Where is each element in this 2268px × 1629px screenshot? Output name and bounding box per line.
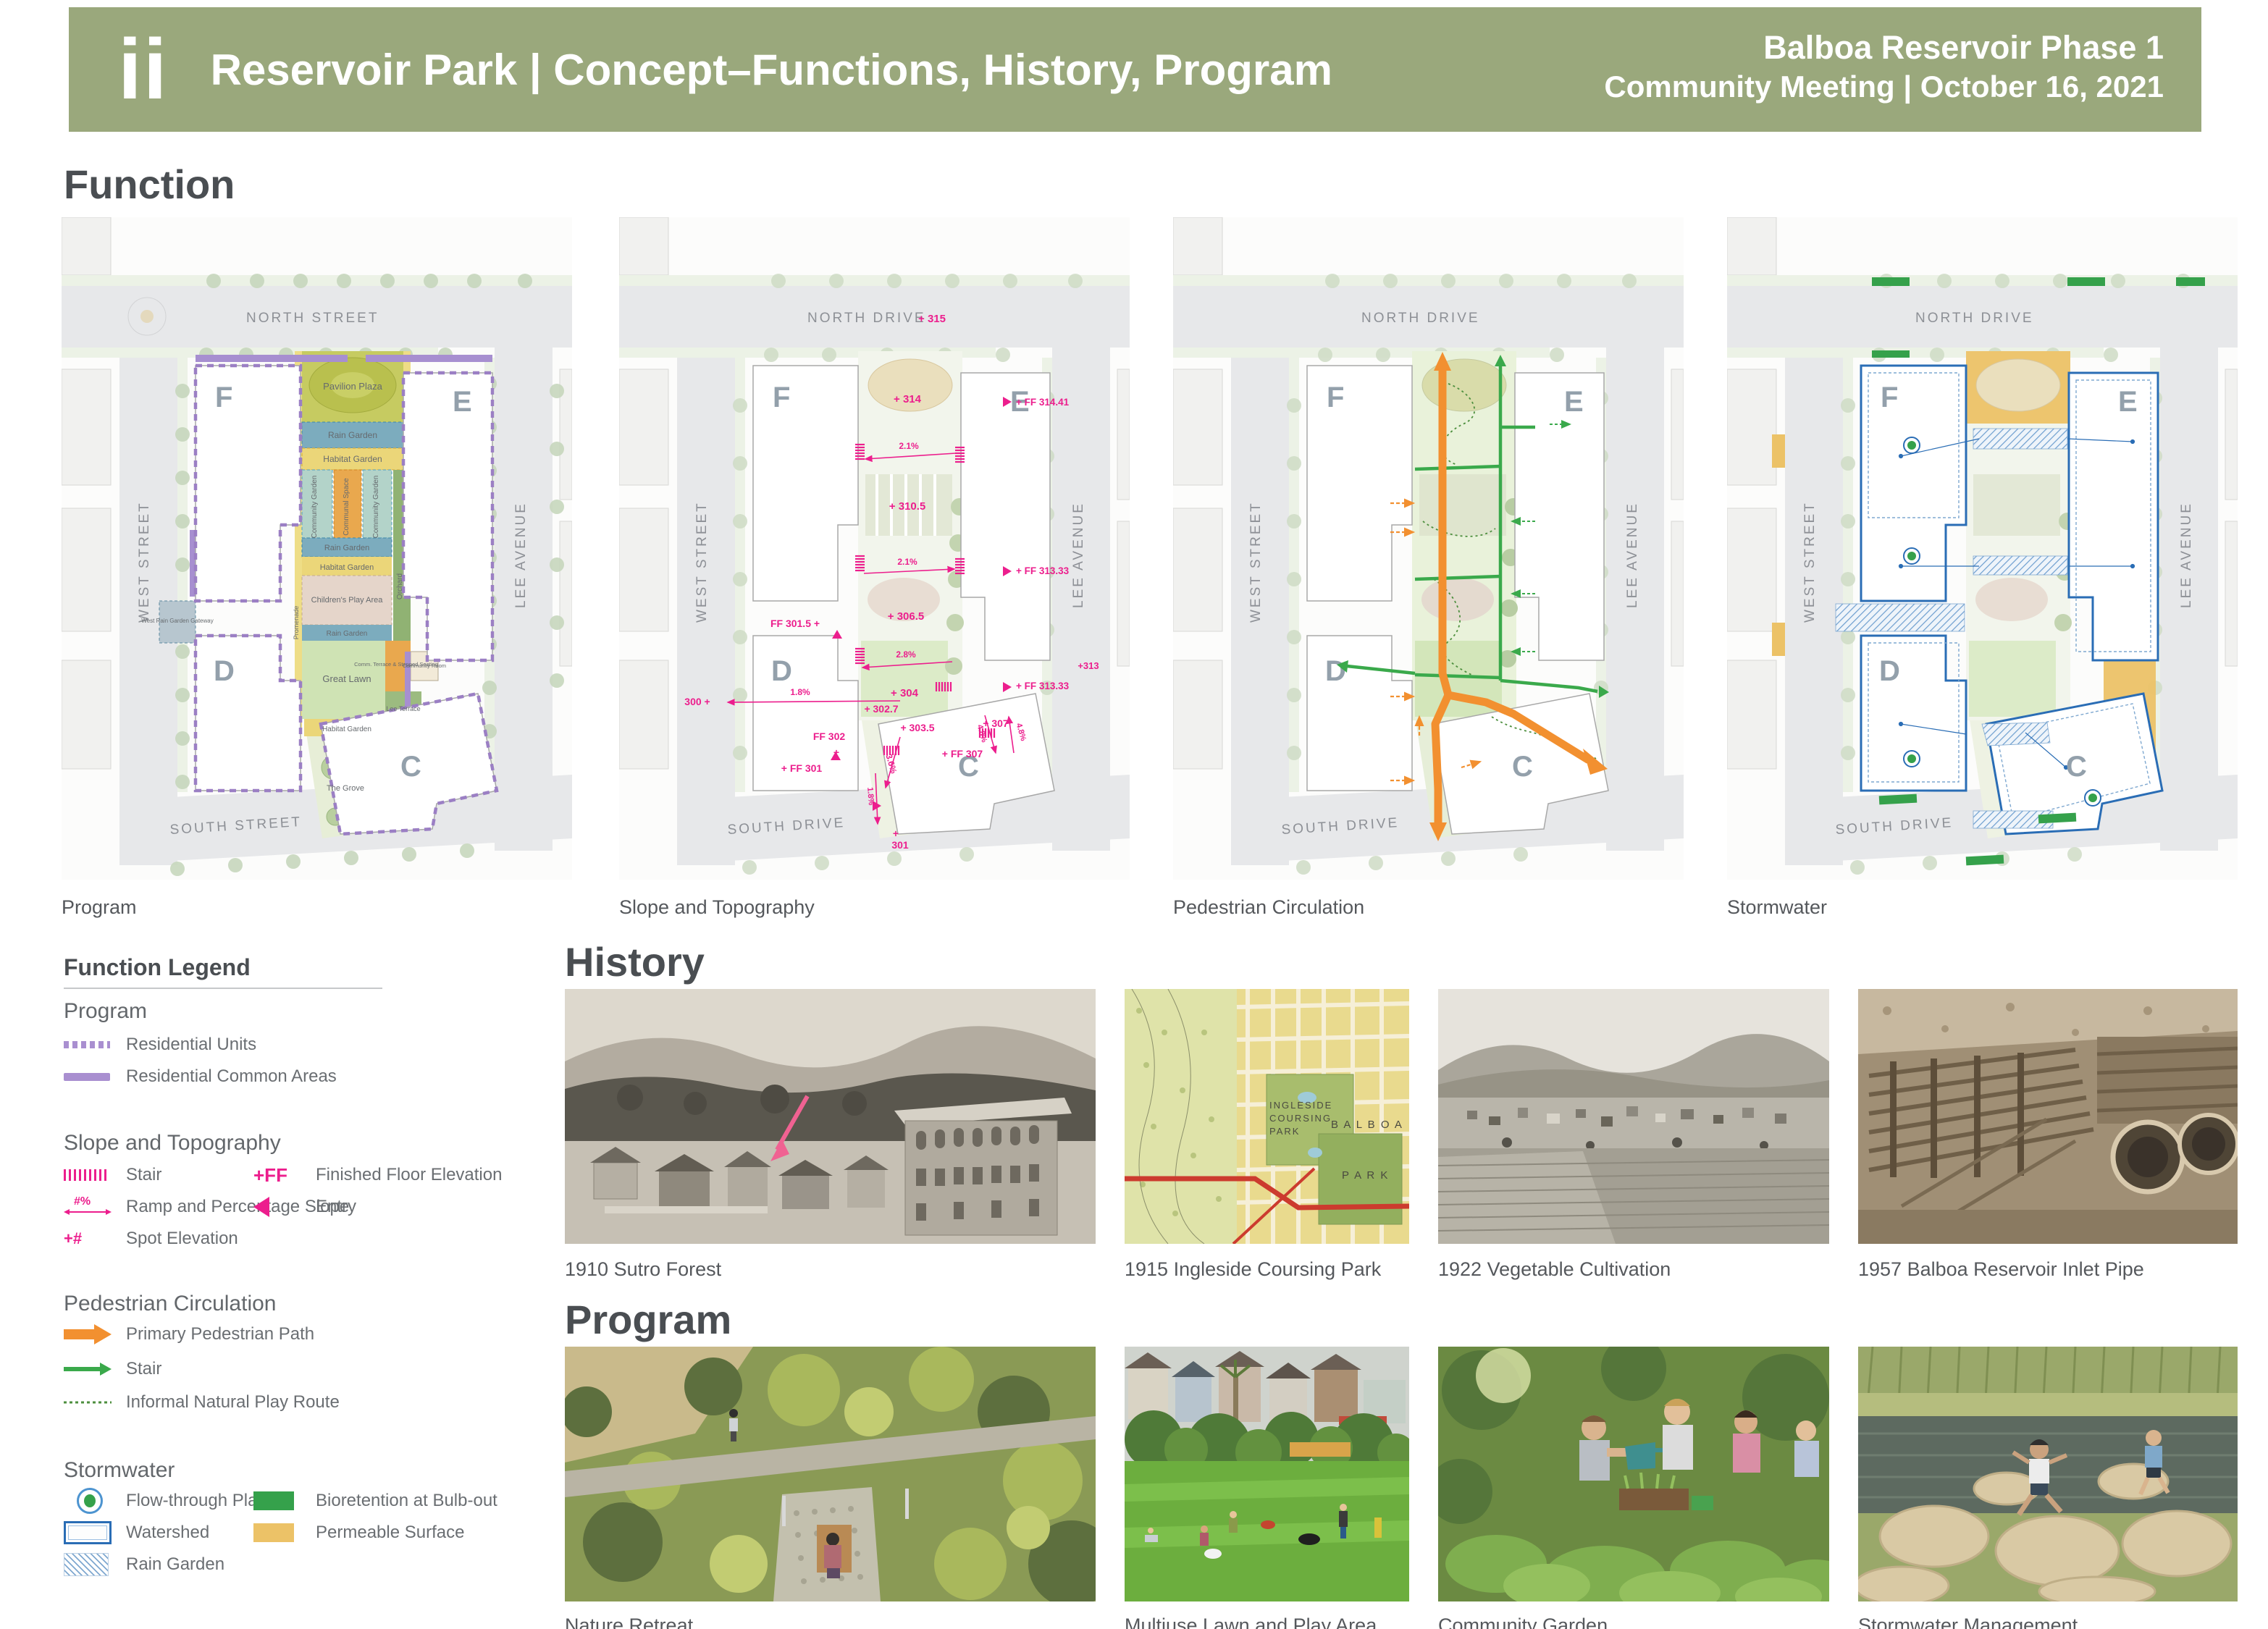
legend-label: Informal Natural Play Route xyxy=(126,1392,340,1413)
legend-item-entry: Entry xyxy=(253,1195,356,1219)
map-text: P A R K xyxy=(1342,1169,1389,1182)
block-e-label: E xyxy=(2118,386,2138,418)
west-street-label: WEST STREET xyxy=(1802,501,1818,623)
reservoir-inlet-pipe-photo xyxy=(1858,989,2238,1244)
spot-elevation: 300 + xyxy=(684,696,710,707)
west-street-label: WEST STREET xyxy=(694,501,710,623)
lee-avenue-label: LEE AVENUE xyxy=(2179,502,2194,608)
legend-label: Entry xyxy=(316,1197,356,1217)
legend-group-slope: Slope and Topography xyxy=(64,1131,281,1156)
program-photo-multiuse-lawn xyxy=(1125,1347,1409,1601)
legend-label: Rain Garden xyxy=(126,1554,224,1575)
zone-label: Children's Play Area xyxy=(311,596,384,605)
legend-item-informal: Informal Natural Play Route xyxy=(64,1390,340,1415)
zone-label: West Rain Garden Gateway xyxy=(141,618,213,624)
zone-label: Promenade xyxy=(293,606,300,640)
history-heading: History xyxy=(565,938,705,985)
legend-item-ff: +FF Finished Floor Elevation xyxy=(253,1163,502,1187)
west-street-label: WEST STREET xyxy=(137,501,152,623)
block-d-label: D xyxy=(771,655,792,687)
program-photo-nature-retreat xyxy=(565,1347,1096,1601)
legend-label: Bioretention at Bulb-out xyxy=(316,1491,497,1511)
map-text: B A L B O A xyxy=(1331,1119,1403,1131)
zone-label: Rain Garden xyxy=(324,544,369,552)
map-text: INGLESIDE xyxy=(1269,1100,1332,1111)
stormwater-management-photo xyxy=(1858,1347,2238,1601)
history-caption-1922: 1922 Vegetable Cultivation xyxy=(1438,1258,1671,1281)
ff-elevation: + FF 313.33 xyxy=(1016,681,1070,691)
sutro-forest-photo xyxy=(565,989,1096,1244)
west-street-label: WEST STREET xyxy=(1248,501,1264,623)
slope-pct: 1.8% xyxy=(790,687,810,697)
zone-label: Rain Garden xyxy=(327,630,368,638)
legend-group-program: Program xyxy=(64,999,147,1024)
legend-item-spot: +# Spot Elevation xyxy=(64,1226,238,1251)
map-text: COURSING xyxy=(1269,1113,1332,1124)
svg-text:#%: #% xyxy=(74,1195,91,1208)
history-caption-1957: 1957 Balboa Reservoir Inlet Pipe xyxy=(1858,1258,2144,1281)
map-slope-topography: F E D C NORTH DRIVE WEST STREET LEE AVEN… xyxy=(619,217,1130,880)
zone-label: Community Garden xyxy=(311,476,319,539)
block-f-label: F xyxy=(1881,382,1898,413)
map-stormwater: F E D C NORTH DRIVE WEST STREET LEE AVEN… xyxy=(1727,217,2238,880)
function-heading: Function xyxy=(64,161,235,208)
history-caption-1910: 1910 Sutro Forest xyxy=(565,1258,721,1281)
plus-mark: + xyxy=(833,746,839,758)
ff-elevation: FF 301.5 + xyxy=(770,618,820,629)
zone-label: Habitat Garden xyxy=(322,725,371,733)
block-d-label: D xyxy=(1879,655,1900,687)
spot-elevation: + 315 xyxy=(918,313,946,325)
bioretention-symbol xyxy=(253,1491,306,1510)
map-caption-stormwater: Stormwater xyxy=(1727,896,1827,919)
person-on-bench xyxy=(817,1525,852,1578)
map-text: PARK xyxy=(1269,1126,1300,1137)
north-street-label: NORTH STREET xyxy=(246,311,379,326)
zone-label: Lee Terrace xyxy=(386,705,420,712)
zone-label: Great Lawn xyxy=(322,673,371,684)
spot-elevation: + 307 xyxy=(983,717,1009,729)
planter-box xyxy=(1619,1489,1689,1510)
zone-label: Orchard xyxy=(396,573,404,599)
zone-label: Rain Garden xyxy=(328,430,377,440)
legend-item-ped-stair: Stair xyxy=(64,1357,161,1381)
legend-heading: Function Legend xyxy=(64,954,251,981)
legend-item-watershed: Watershed xyxy=(64,1520,209,1545)
spot-elevation: + 314 xyxy=(894,393,922,405)
program-site-plan: F E D C NORTH STREET WEST STREET LEE AVE… xyxy=(62,217,572,880)
lee-avenue-label: LEE AVENUE xyxy=(1071,502,1086,608)
circulation-site-plan: F E D C NORTH DRIVE WEST STREET LEE AVEN… xyxy=(1173,217,1684,880)
legend-item-residential-common: Residential Common Areas xyxy=(64,1064,337,1089)
legend-label: Residential Common Areas xyxy=(126,1066,337,1087)
spot-elevation: + 302.7 xyxy=(864,703,898,715)
legend-item-bioretention: Bioretention at Bulb-out xyxy=(253,1489,497,1513)
rain-garden-symbol xyxy=(64,1553,116,1576)
multiuse-lawn-photo xyxy=(1125,1347,1409,1601)
meeting-date: Community Meeting | October 16, 2021 xyxy=(1604,68,2164,106)
program-photo-stormwater xyxy=(1858,1347,2238,1601)
history-photo-1922 xyxy=(1438,989,1829,1244)
north-drive-label: NORTH DRIVE xyxy=(1361,311,1480,326)
entry-symbol xyxy=(253,1197,306,1217)
map-pedestrian-circulation: F E D C NORTH DRIVE WEST STREET LEE AVEN… xyxy=(1173,217,1684,880)
project-name: Balboa Reservoir Phase 1 xyxy=(1604,28,2164,68)
program-photo-community-garden xyxy=(1438,1347,1829,1601)
block-c-label: C xyxy=(2066,751,2087,783)
stormwater-site-plan: F E D C NORTH DRIVE WEST STREET LEE AVEN… xyxy=(1727,217,2238,880)
legend-label: Permeable Surface xyxy=(316,1523,464,1543)
spot-elevation: + 310.5 xyxy=(889,500,925,513)
block-e-label: E xyxy=(453,386,472,418)
vegetable-cultivation-photo xyxy=(1438,989,1829,1244)
legend-group-stormwater: Stormwater xyxy=(64,1458,175,1483)
program-caption-storm: Stormwater Management xyxy=(1858,1615,2078,1629)
lee-avenue-label: LEE AVENUE xyxy=(513,502,529,608)
slope-site-plan: F E D C NORTH DRIVE WEST STREET LEE AVEN… xyxy=(619,217,1130,880)
program-caption-garden: Community Garden xyxy=(1438,1615,1608,1629)
map-caption-slope: Slope and Topography xyxy=(619,896,815,919)
ff-elevation: + FF 314.41 xyxy=(1016,397,1070,408)
program-heading: Program xyxy=(565,1296,731,1343)
block-c-label: C xyxy=(1512,751,1533,783)
zone-label: Habitat Garden xyxy=(320,563,374,572)
map-program: F E D C NORTH STREET WEST STREET LEE AVE… xyxy=(62,217,572,880)
zone-label: Community Room xyxy=(403,662,446,669)
ramp-symbol: #% xyxy=(64,1195,116,1219)
ff-elevation: + FF 307 xyxy=(942,748,983,759)
legend-rule xyxy=(64,988,382,989)
legend-item-stair: Stair xyxy=(64,1163,161,1187)
ff-elevation: FF 302 xyxy=(813,731,846,742)
firm-logo: ii xyxy=(118,27,169,112)
zone-label: Community Garden xyxy=(372,476,380,539)
zone-label: Communal Space xyxy=(343,478,350,536)
legend-label: Stair xyxy=(126,1165,161,1185)
history-photo-1957 xyxy=(1858,989,2238,1244)
history-photo-1915: INGLESIDE COURSING PARK B A L B O A P A … xyxy=(1125,989,1409,1244)
zone-label: Habitat Garden xyxy=(323,454,382,464)
legend-group-pedestrian: Pedestrian Circulation xyxy=(64,1292,276,1316)
plus-mark: + xyxy=(893,828,899,839)
block-d-label: D xyxy=(1325,655,1346,687)
legend-label: Finished Floor Elevation xyxy=(316,1165,502,1185)
residential-common-swatch xyxy=(64,1073,116,1081)
permeable-symbol xyxy=(253,1523,306,1542)
header-bar: ii Reservoir Park | Concept–Functions, H… xyxy=(69,7,2201,132)
program-caption-nature: Nature Retreat xyxy=(565,1615,693,1629)
presentation-board: ii Reservoir Park | Concept–Functions, H… xyxy=(0,0,2268,1629)
function-legend: Function Legend Program Residential Unit… xyxy=(64,954,542,1591)
legend-item-rain-garden: Rain Garden xyxy=(64,1552,224,1577)
slope-pct: 2.8% xyxy=(896,649,916,660)
informal-route-symbol xyxy=(64,1399,116,1406)
legend-label: Spot Elevation xyxy=(126,1229,238,1249)
block-f-label: F xyxy=(1327,382,1344,413)
legend-label: Stair xyxy=(126,1359,161,1379)
header-meta: Balboa Reservoir Phase 1 Community Meeti… xyxy=(1604,28,2164,106)
slope-pct: 2.1% xyxy=(899,441,919,451)
ingleside-map-photo: INGLESIDE COURSING PARK B A L B O A P A … xyxy=(1125,989,1409,1244)
spot-elevation: + 306.5 xyxy=(888,610,924,623)
residential-units-swatch xyxy=(64,1041,116,1048)
block-c-label: C xyxy=(400,751,421,783)
legend-label: Primary Pedestrian Path xyxy=(126,1324,314,1344)
history-photo-1910 xyxy=(565,989,1096,1244)
ff-elevation: + FF 313.33 xyxy=(1016,565,1070,576)
board-title: Reservoir Park | Concept–Functions, Hist… xyxy=(211,45,1332,95)
block-f-label: F xyxy=(215,382,232,413)
zone-label: Pavilion Plaza xyxy=(323,381,382,392)
primary-path-symbol xyxy=(64,1321,116,1347)
spot-symbol: +# xyxy=(64,1229,116,1248)
legend-item-primary-path: Primary Pedestrian Path xyxy=(64,1322,314,1347)
block-f-label: F xyxy=(773,382,790,413)
legend-item-residential-units: Residential Units xyxy=(64,1032,256,1057)
slope-pct: 2.1% xyxy=(897,557,917,567)
stair-arrow-symbol xyxy=(64,1362,116,1376)
lee-avenue-label: LEE AVENUE xyxy=(1625,502,1640,608)
block-d-label: D xyxy=(214,655,235,687)
spot-elevation: +313 xyxy=(1078,660,1099,671)
history-caption-1915: 1915 Ingleside Coursing Park xyxy=(1125,1258,1381,1281)
spot-elevation: + 304 xyxy=(891,687,919,699)
spot-elevation: + 303.5 xyxy=(900,722,934,733)
stair-symbol xyxy=(64,1169,116,1181)
map-caption-program: Program xyxy=(62,896,137,919)
program-caption-lawn: Multiuse Lawn and Play Area xyxy=(1125,1615,1377,1629)
community-garden-photo xyxy=(1438,1347,1829,1601)
spot-elevation: 301 xyxy=(891,839,909,851)
nature-retreat-photo xyxy=(565,1347,1096,1601)
block-e-label: E xyxy=(1564,386,1584,418)
ff-elevation: + FF 301 xyxy=(781,762,823,774)
flow-planter-symbol xyxy=(64,1488,116,1514)
legend-label: Residential Units xyxy=(126,1035,256,1055)
ff-symbol: +FF xyxy=(253,1164,306,1187)
slope-pct: 1.8% xyxy=(865,787,875,806)
north-drive-label: NORTH DRIVE xyxy=(1915,311,2034,326)
legend-item-permeable: Permeable Surface xyxy=(253,1520,464,1545)
map-caption-circulation: Pedestrian Circulation xyxy=(1173,896,1364,919)
legend-label: Watershed xyxy=(126,1523,209,1543)
watershed-symbol xyxy=(64,1521,116,1544)
zone-label: The Grove xyxy=(327,784,364,793)
north-drive-label: NORTH DRIVE xyxy=(807,311,926,326)
